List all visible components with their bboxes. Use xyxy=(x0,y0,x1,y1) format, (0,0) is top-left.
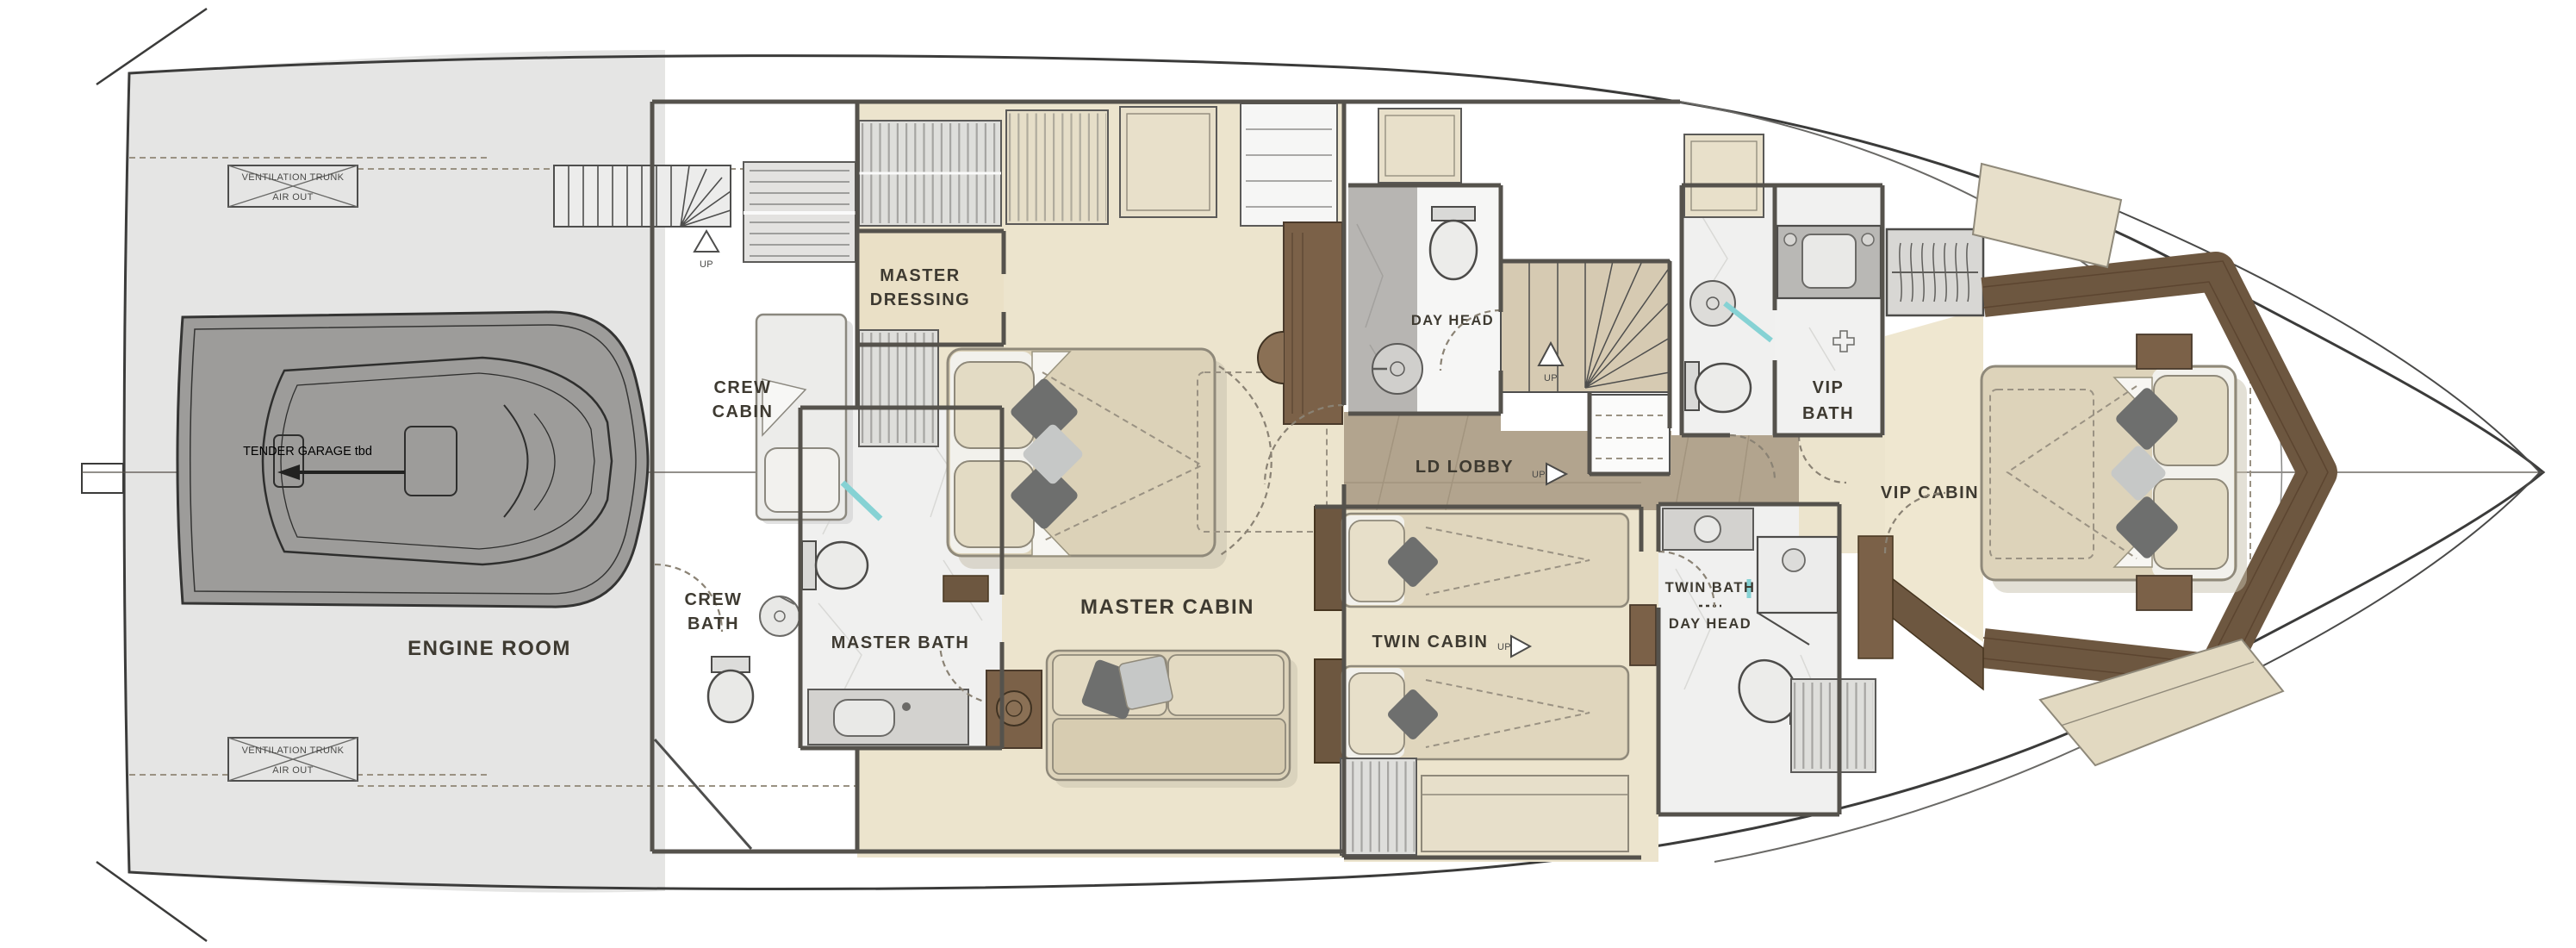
ventilation-box-top: VENTILATION TRUNK AIR OUT xyxy=(228,165,358,207)
pillow-light xyxy=(1118,655,1173,710)
vip-vanity xyxy=(1777,226,1881,298)
wardrobe-hatch-1 xyxy=(859,121,1001,226)
master-dressing-label-2: DRESSING xyxy=(870,290,970,309)
transom-fitting xyxy=(82,464,123,493)
master-bed xyxy=(948,349,1227,569)
air-out-label-bottom: AIR OUT xyxy=(272,765,313,776)
twin-area: TWIN CABIN UP xyxy=(1315,507,1656,855)
wardrobe-hatch-2 xyxy=(859,330,938,446)
hanger-rack-icon xyxy=(1887,229,1983,315)
vip-bath-label-2: BATH xyxy=(1802,404,1854,423)
twin-nightstand xyxy=(1630,605,1656,665)
ventilation-box-bottom: VENTILATION TRUNK AIR OUT xyxy=(228,738,358,781)
toilet-icon xyxy=(1685,362,1751,412)
vip-locker-top xyxy=(1973,164,2121,267)
cabinet-plain xyxy=(1120,107,1216,217)
side-table xyxy=(986,670,1042,748)
sink-icon xyxy=(760,596,800,636)
air-out-label-top: AIR OUT xyxy=(272,192,313,203)
crew-bath-label-1: CREW xyxy=(684,590,742,609)
lower-deck-plan: VENTILATION TRUNK AIR OUT VENTILATION TR… xyxy=(0,0,2576,948)
sink-icon xyxy=(1695,516,1720,542)
main-stairs-up-label: UP xyxy=(1544,373,1558,384)
wood-strip xyxy=(1858,536,1893,658)
lobby-up-label: UP xyxy=(1532,470,1546,480)
master-cabin-label: MASTER CABIN xyxy=(1080,596,1254,619)
twin-cabin-label: TWIN CABIN xyxy=(1372,633,1489,652)
crew-cabin-label-1: CREW xyxy=(713,378,771,397)
twin-bed-upper xyxy=(1315,507,1628,610)
day-head-mid-label: DAY HEAD xyxy=(1411,313,1494,328)
wardrobe-hatch-3 xyxy=(1006,110,1108,224)
toilet-icon xyxy=(802,541,816,589)
crew-cabin-label-2: CABIN xyxy=(712,402,774,421)
crew-shelving xyxy=(744,162,856,262)
up-arrow-icon xyxy=(694,231,719,252)
twin-up-label: UP xyxy=(1497,642,1511,652)
sink-icon xyxy=(834,700,894,736)
crew-stairs-up-label: UP xyxy=(700,259,713,270)
locker-shelved xyxy=(1241,103,1337,226)
master-bath-label: MASTER BATH xyxy=(831,633,970,652)
tender-garage-label: TENDER GARAGE tbd xyxy=(243,445,372,458)
master-dressing-label-1: MASTER xyxy=(880,266,960,285)
toilet-icon xyxy=(1432,207,1475,221)
sofa xyxy=(1047,651,1297,788)
vip-nightstand-bottom xyxy=(2137,576,2192,610)
wardrobe-hatch-4 xyxy=(1341,758,1416,855)
vent-trunk-label-bottom: VENTILATION TRUNK xyxy=(242,745,345,756)
vent-trunk-label-top: VENTILATION TRUNK xyxy=(242,172,345,183)
wardrobe-hatch-5 xyxy=(1791,679,1876,772)
fwd-vanity-cabinet xyxy=(1378,109,1461,183)
engine-room-label: ENGINE ROOM xyxy=(408,637,571,660)
sink-icon xyxy=(1802,234,1856,288)
twin-bed-lower xyxy=(1315,659,1628,763)
main-stairs-icon: UP xyxy=(1501,261,1670,392)
wood-sill xyxy=(943,576,988,602)
bench-cabinet xyxy=(1422,776,1628,851)
vip-bath-label-1: VIP xyxy=(1813,378,1845,397)
day-head-fwd-label: DAY HEAD xyxy=(1669,616,1752,632)
crew-bath-label-2: BATH xyxy=(688,614,739,633)
vip-cabin-label: VIP CABIN xyxy=(1881,483,1979,502)
ld-lobby-label: LD LOBBY xyxy=(1416,458,1514,477)
tender-garage: TENDER GARAGE tbd xyxy=(177,312,648,607)
stair-closet xyxy=(1590,395,1670,474)
master-dressing-floor xyxy=(857,231,1004,345)
vip-bath-floor xyxy=(1775,185,1882,435)
cabinet-above-shower-room xyxy=(1684,134,1764,217)
vip-nightstand-top xyxy=(2137,334,2192,369)
